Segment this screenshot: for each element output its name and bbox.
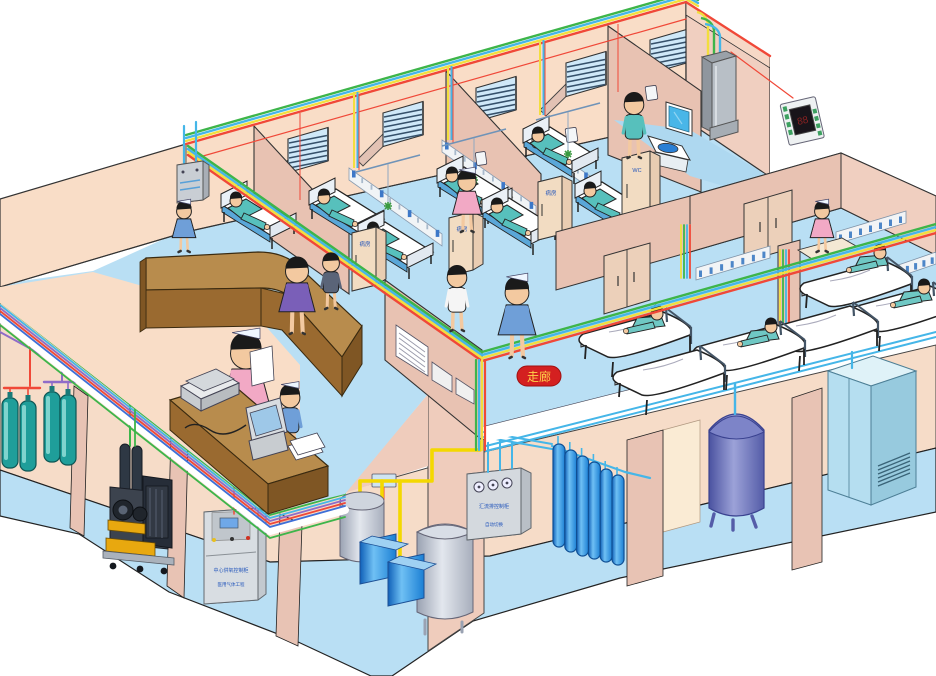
svg-text:自动切换: 自动切换 [485, 521, 503, 528]
svg-text:走廊: 走廊 [527, 369, 551, 384]
svg-text:中心供氧控制柜: 中心供氧控制柜 [213, 567, 248, 574]
svg-text:病房: 病房 [359, 240, 371, 248]
svg-text:医用气体工程: 医用气体工程 [218, 581, 245, 588]
svg-text:病房: 病房 [545, 189, 557, 197]
svg-text:汇流排控制柜: 汇流排控制柜 [479, 503, 509, 510]
svg-text:WC: WC [632, 168, 641, 174]
